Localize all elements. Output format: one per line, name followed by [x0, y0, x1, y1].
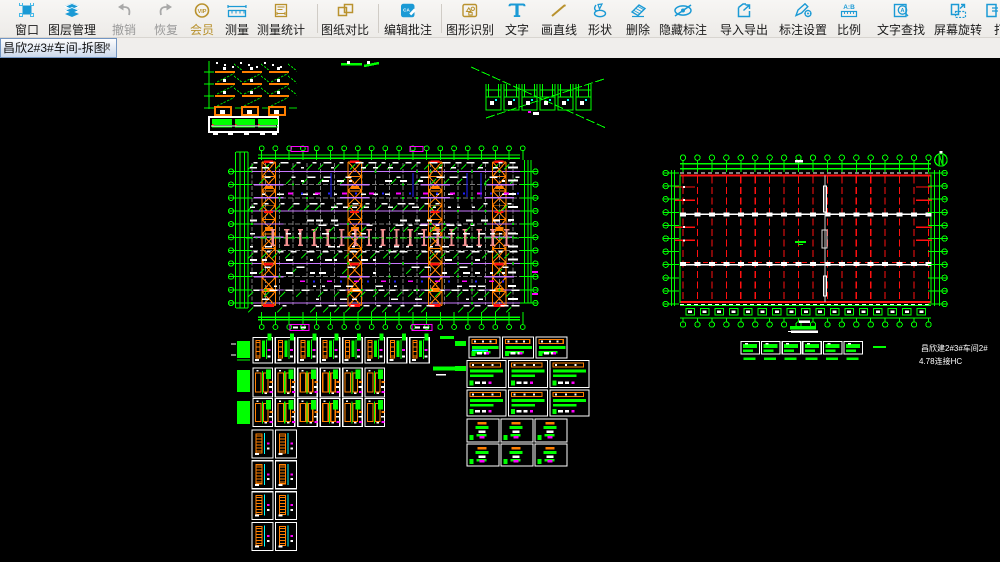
svg-text:4.78连接HC: 4.78连接HC: [919, 356, 962, 366]
svg-text:CA: CA: [403, 8, 410, 13]
svg-text:A: A: [901, 8, 905, 14]
svg-text:VIP: VIP: [198, 9, 207, 15]
svg-text:A:B: A:B: [843, 4, 855, 11]
svg-text:昌欣建2#3#车间2#: 昌欣建2#3#车间2#: [921, 343, 988, 353]
